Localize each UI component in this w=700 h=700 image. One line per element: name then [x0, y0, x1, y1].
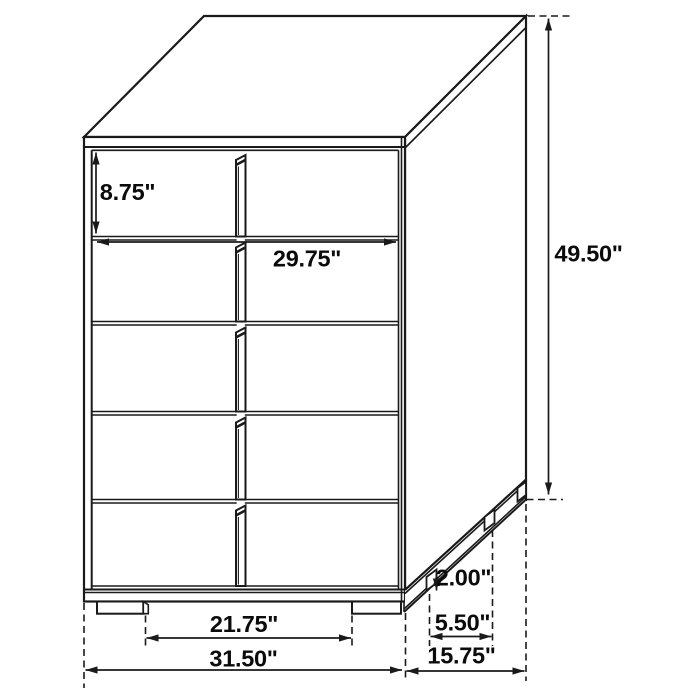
front-foot-right [352, 602, 401, 614]
label-side-foot-spacing: 5.50" [435, 610, 490, 636]
label-top-drawer-height: 8.75" [100, 179, 155, 205]
drawer-handle-3 [236, 328, 246, 412]
drawer-handle-5 [236, 506, 246, 587]
drawer-handles [236, 155, 246, 586]
label-foot-height: 2.00" [436, 565, 491, 591]
label-overall-height: 49.50" [554, 241, 622, 267]
chest-drawing: 8.75" 29.75" 49.50" 2.00" 5.50" 21.75" 3… [0, 0, 700, 700]
label-overall-depth: 15.75" [427, 643, 495, 669]
front-foot-left-side [143, 602, 148, 614]
label-overall-width: 31.50" [209, 646, 277, 672]
dimension-drawing-canvas: 8.75" 29.75" 49.50" 2.00" 5.50" 21.75" 3… [0, 0, 700, 700]
drawer-handle-4 [236, 418, 246, 500]
cabinet-body [84, 16, 526, 614]
drawer-handle-1 [236, 155, 246, 237]
drawer-handle-2 [236, 243, 246, 322]
label-front-foot-spacing: 21.75" [210, 611, 278, 637]
label-drawer-front-width: 29.75" [273, 246, 341, 272]
front-foot-left [97, 602, 143, 614]
